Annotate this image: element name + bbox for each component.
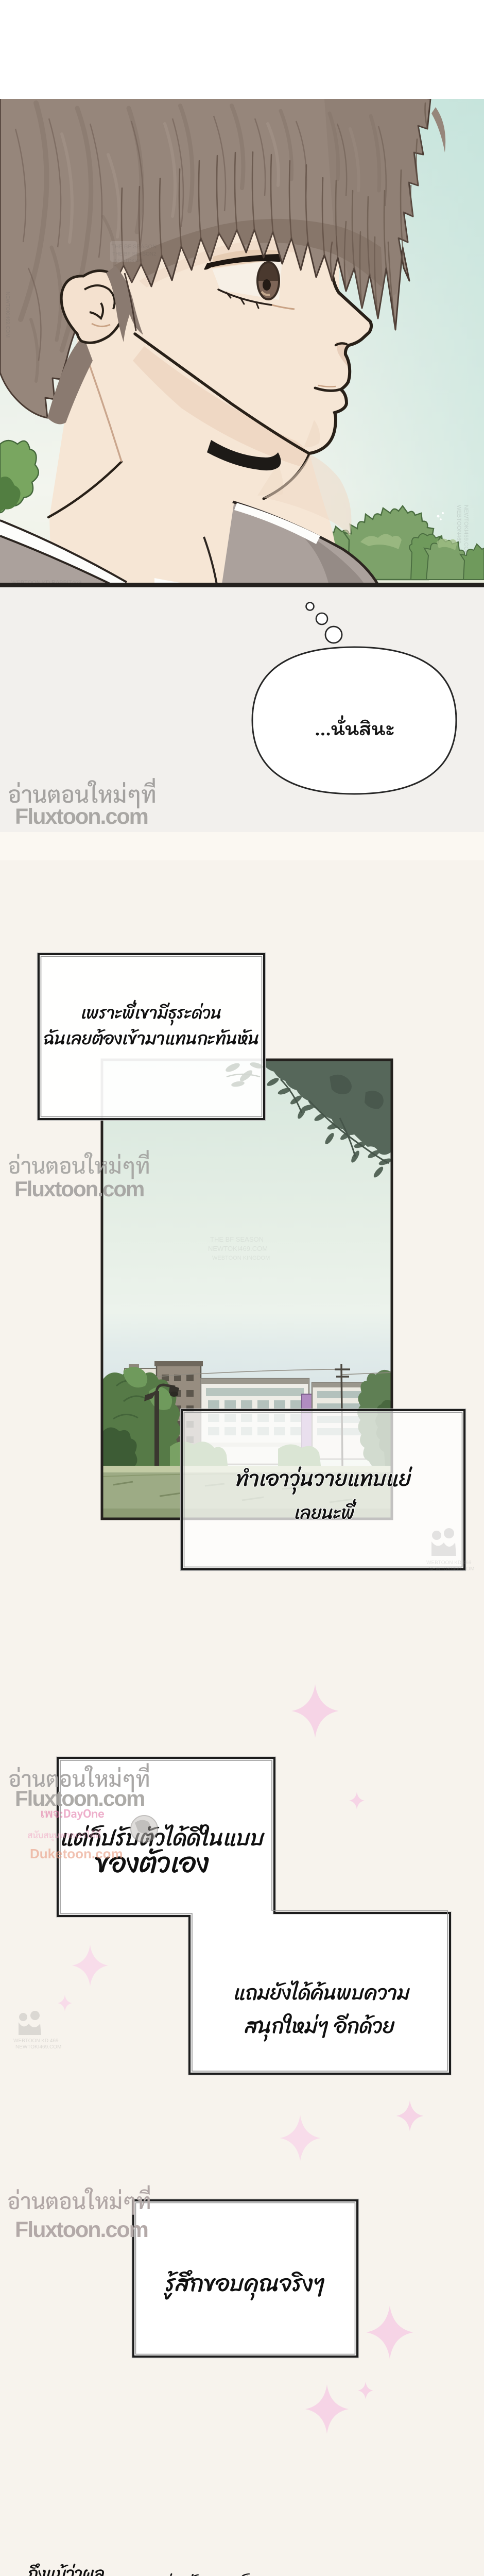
svg-text:WEBTOON469: WEBTOON469 xyxy=(456,505,462,544)
svg-text:WEBTOON KINGDOM: WEBTOON KINGDOM xyxy=(212,1255,270,1261)
svg-text:NEWTOKI469.COM: NEWTOKI469.COM xyxy=(5,292,10,337)
svg-text:THE BF SEASON: THE BF SEASON xyxy=(210,1235,264,1243)
svg-text:Fluxtoon.com: Fluxtoon.com xyxy=(15,1786,144,1810)
svg-text:WEBTOON KD 469: WEBTOON KD 469 xyxy=(13,2038,59,2044)
svg-text:THE BF SEASON2: THE BF SEASON2 xyxy=(112,251,157,257)
svg-text:WEBTOON KD 469: WEBTOON KD 469 xyxy=(426,1560,472,1566)
svg-text:Duketoon.com: Duketoon.com xyxy=(30,1846,123,1861)
svg-text:NEWTOKI469.COM: NEWTOKI469.COM xyxy=(463,505,469,555)
svg-text:NEWTOKI469.COM: NEWTOKI469.COM xyxy=(208,1245,268,1252)
svg-text:NEWTOKI469.COM: NEWTOKI469.COM xyxy=(15,2044,61,2050)
svg-text:NEWTOKI469.COM: NEWTOKI469.COM xyxy=(428,1566,474,1572)
svg-text:THE BF SEASON: THE BF SEASON xyxy=(111,244,157,250)
svg-text:Fluxtoon.com: Fluxtoon.com xyxy=(14,1177,144,1201)
svg-text:Fluxtoon.com: Fluxtoon.com xyxy=(15,2217,148,2242)
svg-text:Fluxtoon.com: Fluxtoon.com xyxy=(15,804,148,829)
svg-text:NEWTOKI469: NEWTOKI469 xyxy=(114,258,144,263)
